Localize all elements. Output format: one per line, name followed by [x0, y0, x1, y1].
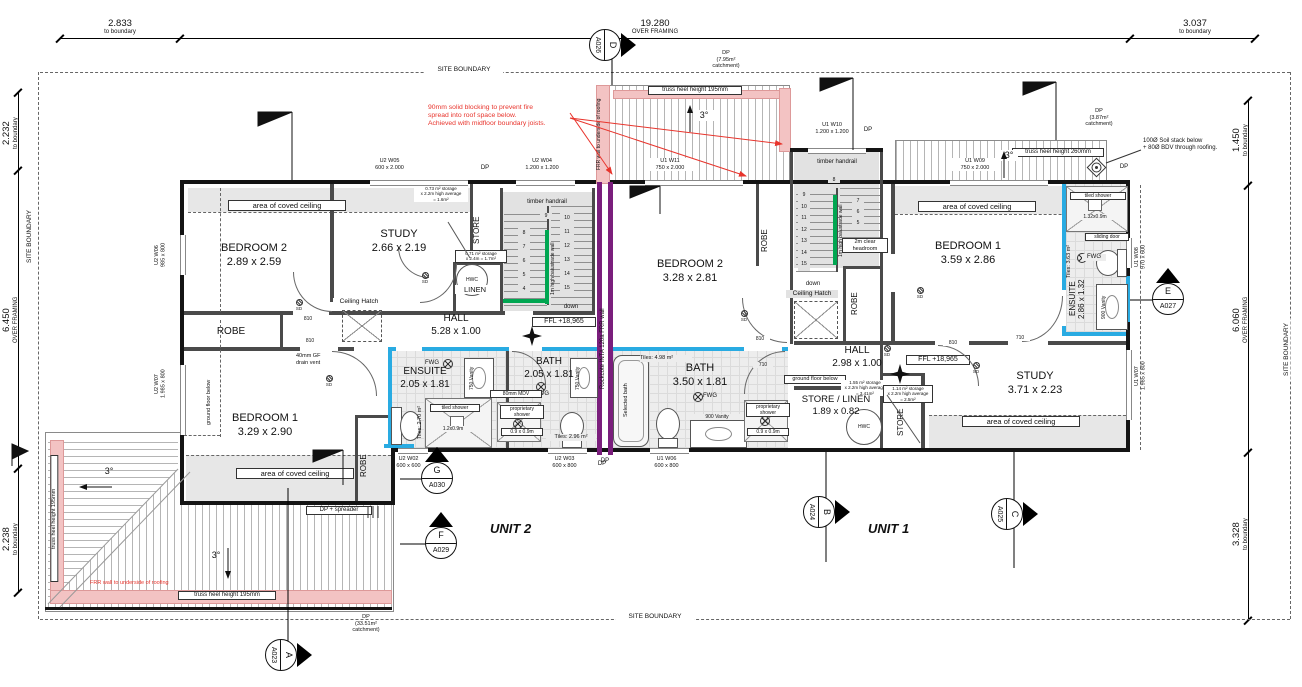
door-opening: [293, 311, 329, 315]
section-marker-c: CA025: [990, 498, 1038, 530]
window-u1w10: [808, 148, 866, 154]
section-marker-d: DA026: [588, 29, 636, 61]
wall: [891, 292, 895, 345]
truss-heel-label-bottom: truss heel height 195mm: [178, 591, 276, 600]
shower-head-icon: [760, 416, 770, 426]
shower-label: tiled shower: [430, 404, 480, 412]
balustrade-wall: [545, 230, 549, 304]
marker-arrow-icon: [1156, 268, 1180, 283]
coved-label: area of coved ceiling: [962, 416, 1080, 427]
bathtub: [613, 355, 649, 447]
room-u2-robe-wing: ROBE: [359, 438, 368, 493]
dash-ref: [1140, 185, 1141, 450]
section-marker-e: EA027: [1152, 268, 1184, 316]
wall: [395, 448, 1130, 452]
wall: [45, 607, 392, 610]
shower-label: tiled shower: [1070, 192, 1126, 200]
ceiling-hatch: [794, 301, 838, 339]
roof-area-top-mid: [607, 85, 790, 184]
linen-label: LINEN: [455, 285, 495, 294]
door-size-tag: 710: [1010, 335, 1030, 341]
roof-slope-top-right: 3°: [1000, 150, 1018, 161]
dim-left-top: 2.232to boundary: [2, 98, 20, 168]
room-u2-ensuite: ENSUITE2.05 x 1.81: [389, 366, 461, 391]
room-u2-study: STUDY2.66 x 2.19: [349, 228, 449, 256]
storage-note: 1.14 m² storage x 2.2m high average = 2.…: [883, 385, 933, 403]
vanity-label: 750 Vanity: [470, 362, 476, 394]
dimension-line-top: [60, 38, 1256, 39]
toilet: [656, 408, 680, 440]
sliding-door-label: sliding door: [1085, 233, 1129, 241]
coved-label: area of coved ceiling: [918, 201, 1036, 212]
shower-size: 0.9 x 0.9m: [747, 428, 789, 436]
roof-slope-top-mid: 3°: [694, 110, 714, 121]
marker-arrow-icon: [425, 447, 449, 462]
window-label-u2w06: U2 W06985 x 800: [154, 232, 167, 278]
door-size-tag: 810: [750, 336, 770, 342]
window-label-u1w06: U1 W06600 x 800: [644, 456, 689, 469]
bathtub-label: Selected bath: [623, 365, 629, 435]
shower-size: 0.9 x 0.9m: [501, 428, 543, 436]
room-u1-ensuite: ENSUITE2.86 x 1.32: [1068, 266, 1086, 332]
headroom-label: 2m clear headroom: [842, 238, 888, 253]
toilet: [1117, 249, 1127, 277]
dash-ref: [184, 435, 220, 436]
vanity-label: 900 Vanity: [692, 414, 742, 420]
wall: [843, 266, 883, 269]
wall: [355, 415, 391, 418]
dim-top-left: 2.833to boundary: [70, 18, 170, 37]
roof-slope-down: 3°: [205, 550, 227, 561]
shower-waste: [1088, 199, 1102, 211]
door-size-tag: 710: [753, 362, 773, 368]
wall: [756, 184, 759, 266]
window-u2w07: [180, 365, 186, 435]
smoke-detector-icon: SD: [911, 287, 929, 300]
room-u1-bath: BATH3.50 x 1.81: [655, 362, 745, 390]
floor-plan-canvas: 2.833to boundary 19.280OVER FRAMING 3.03…: [0, 0, 1302, 687]
room-u1-study: STUDY3.71 x 2.23: [985, 370, 1085, 398]
room-u1-bedroom2: BEDROOM 23.28 x 2.81: [630, 258, 750, 286]
room-u2-bath: BATH2.05 x 1.81: [504, 356, 594, 381]
balustrade-wall: [503, 299, 549, 303]
room-u1-bedroom1: BEDROOM 13.59 x 2.86: [913, 240, 1023, 268]
door-opening: [396, 347, 422, 351]
section-marker-a: AA023: [264, 639, 312, 671]
dim-right-mid: 6.060OVER FRAMING: [1232, 275, 1250, 365]
window-u1w06: [650, 448, 689, 454]
balustrade-wall: [833, 195, 837, 265]
mdv-label: 80mm MDV: [490, 390, 542, 398]
frr-strip-stair-wall: [779, 88, 791, 152]
wall: [883, 373, 925, 376]
coved-label: area of coved ceiling: [236, 468, 354, 479]
fwg-label: FWG: [698, 393, 722, 400]
wall: [843, 266, 846, 342]
section-marker-b: BA024: [802, 496, 850, 528]
roof-area-top-right: [895, 140, 1107, 184]
room-u2-bedroom1: BEDROOM 13.29 x 2.90: [205, 412, 325, 440]
dp-label: DP: [1114, 164, 1134, 171]
fire-blocking-note: 90mm solid blocking to prevent fire spre…: [428, 104, 573, 128]
shower-size: 1.2x0.9m: [434, 426, 472, 432]
wall: [592, 188, 595, 315]
room-u2-store: STORE: [472, 203, 481, 258]
wet-wall: [1062, 332, 1126, 336]
wall: [883, 341, 1126, 345]
window-label-u1w09: U1 W09750 x 2.000: [950, 158, 1000, 171]
storage-note: 0.73 m² storage x 2.2m high average = 1.…: [414, 186, 468, 202]
room-u1-robe-b: ROBE: [850, 278, 859, 330]
section-marker-f: FA029: [425, 512, 457, 560]
shower-head-icon: [513, 419, 523, 429]
smoke-detector-icon: SD: [290, 299, 308, 312]
site-boundary-top: [40, 72, 1290, 73]
room-u2-bedroom2: BEDROOM 22.89 x 2.59: [194, 242, 314, 270]
site-boundary-label-top: SITE BOUNDARY: [425, 66, 503, 74]
wall: [790, 152, 793, 344]
stair-numbers-up: 8 7 6 5 4: [518, 226, 530, 296]
window-u2w06: [180, 235, 186, 275]
truss-heel-label-top: truss heel height 195mm: [648, 86, 742, 95]
window-u2w03: [548, 448, 587, 454]
dim-right-bottom: 3.328to boundary: [1232, 492, 1250, 577]
fwg-label: FWG: [1082, 254, 1106, 261]
tiles-label: Tiles: 2.70 m²: [417, 398, 423, 446]
stair-numbers-up: 7 6 5: [852, 196, 864, 229]
stair-down-label: down: [556, 304, 586, 311]
window-label-u2w05: U2 W05600 x 2.000: [362, 158, 417, 171]
handrail-label: timber handrail: [512, 199, 582, 206]
truss-heel-label-260: truss heel height 260mm: [1012, 148, 1104, 157]
site-boundary-label-left: SITE BOUNDARY: [26, 205, 33, 269]
dim-left-mid: 6.450OVER FRAMING: [2, 255, 20, 385]
stair-down-label: down: [798, 281, 828, 288]
ground-floor-below-note: ground floor below: [206, 372, 212, 432]
site-boundary-left: [38, 72, 39, 619]
door-size-tag: 810: [300, 338, 320, 344]
window-label-u1w11: U1 W11750 x 2.000: [645, 158, 695, 171]
balustrade-label: 1m high balustrade wall: [551, 235, 557, 303]
ceiling-hatch: [342, 310, 382, 342]
window-u1w09: [950, 180, 1048, 186]
room-u2-robe: ROBE: [206, 326, 256, 339]
room-u1-robe-a: ROBE: [760, 213, 769, 268]
dp-label: DP: [475, 165, 495, 172]
site-boundary-label-bottom: SITE BOUNDARY: [616, 613, 694, 621]
door-opening: [505, 311, 533, 315]
vanity-label: 900 Vanity: [1102, 288, 1108, 326]
marker-arrow-icon: [1023, 502, 1038, 526]
frr-underside-note-vertical: FRR wall to underside of roofing: [597, 88, 603, 180]
ceiling-hatch-label: Ceiling Hatch: [786, 290, 838, 298]
shower-size: 1.32x0.9m: [1072, 214, 1118, 220]
shower-label: proprietary shower: [500, 405, 544, 419]
site-boundary-label-right: SITE BOUNDARY: [1283, 318, 1290, 382]
window-label-u2w04: U2 W041.200 x 1.200: [512, 158, 572, 171]
stair-number-top: 8: [828, 177, 840, 183]
vanity: [690, 420, 747, 448]
wall: [184, 311, 595, 315]
wall: [180, 180, 184, 505]
wall: [891, 184, 895, 254]
dp-label: DP: [592, 461, 612, 468]
wall: [180, 501, 395, 505]
marker-arrow-icon: [429, 512, 453, 527]
shower-label: proprietary shower: [746, 403, 790, 417]
smoke-detector-icon: SD: [416, 272, 434, 285]
marker-arrow-icon: [621, 33, 636, 57]
toilet: [658, 438, 678, 448]
roof-slope-left: 3°: [98, 466, 120, 477]
dash-ref: [220, 320, 221, 437]
window-u1w07: [1126, 350, 1132, 420]
ceiling-hatch-label: Ceiling Hatch: [333, 298, 385, 306]
window-label-u1w10: U1 W101.200 x 1.200: [802, 122, 862, 135]
section-marker-g: GA030: [421, 447, 453, 495]
door-size-tag: 810: [943, 340, 963, 346]
marker-arrow-icon: [297, 643, 312, 667]
ffl-label-u2: FFL +18,965: [532, 317, 596, 327]
smoke-detector-icon: SD: [878, 345, 896, 358]
marker-arrow-icon: [835, 500, 850, 524]
stair-numbers-down: 9 10 11 12 13 14 15: [798, 190, 810, 271]
stair-numbers-down: 10 11 12 13 14 15: [560, 211, 574, 295]
window-u1w11: [645, 180, 743, 186]
frr-underside-note-bottom: FRR wall to underside of roofing: [90, 580, 250, 587]
unit1-title: UNIT 1: [868, 521, 909, 536]
tiles-label: Tiles: 2.96 m²: [546, 434, 596, 441]
window-label-u2w03: U2 W03600 x 800: [542, 456, 587, 469]
dp-label: DP: [858, 127, 878, 134]
wall: [355, 415, 358, 501]
handrail-label: timber handrail: [806, 159, 868, 166]
coved-label: area of coved ceiling: [228, 200, 346, 211]
room-u2-hall: HALL5.28 x 1.00: [406, 313, 506, 338]
tiles-label: Tiles: 4.98 m²: [640, 355, 692, 362]
dp-catchment-387: DP (3.87m² catchment): [1076, 108, 1122, 128]
dash-ref: [220, 188, 221, 312]
dp-catchment-3351: DP (33.51m² catchment): [338, 614, 394, 634]
door-opening: [1008, 341, 1048, 345]
balustrade-label: 1m high balustrade wall: [839, 198, 845, 263]
stair-number-top: 9: [540, 213, 552, 219]
drain-vent-note: 40mm GF drain vent: [296, 353, 338, 366]
ground-floor-below-note: ground floor below: [784, 375, 846, 384]
soil-stack-note: 100Ø Soil stack below + 80Ø BDV through …: [1143, 138, 1253, 152]
dp-catchment-795: DP (7.95m² catchment): [703, 50, 749, 70]
truss-heel-label-left: truss heel height 195mm: [50, 455, 58, 582]
dim-left-bottom: 2.238to boundary: [2, 492, 20, 587]
window-u2w04: [516, 180, 575, 186]
room-u1-store: STORE: [896, 398, 905, 446]
rockcote-frr-label: Rockcote INTA 120a FRR wall: [600, 258, 607, 440]
window-label-u2w07: U2 W071.985 x 800: [154, 358, 167, 410]
smoke-detector-icon: SD: [735, 310, 753, 323]
smoke-detector-icon: SD: [967, 362, 985, 375]
dp-spreader-label: DP + spreader: [306, 506, 372, 515]
room-u1-store-linen: STORE / LINEN1.89 x 0.82: [790, 394, 882, 418]
unit2-title: UNIT 2: [490, 521, 531, 536]
door-size-tag: 810: [298, 316, 318, 322]
door-opening: [744, 347, 782, 351]
dim-top-right: 3.037to boundary: [1145, 18, 1245, 37]
smoke-detector-icon: SD: [320, 375, 338, 388]
wall: [280, 311, 283, 350]
